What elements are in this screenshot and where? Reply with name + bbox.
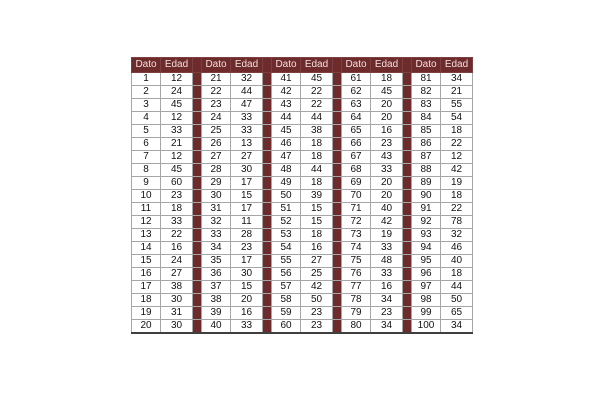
dato-cell: 22 <box>202 86 231 99</box>
table-row: 4122433444464208454 <box>132 112 473 125</box>
group-separator <box>403 320 412 334</box>
dato-cell: 8 <box>132 164 161 177</box>
edad-cell: 42 <box>441 164 473 177</box>
edad-cell: 18 <box>441 125 473 138</box>
dato-cell: 89 <box>412 177 441 190</box>
dato-cell: 83 <box>412 99 441 112</box>
dato-cell: 38 <box>202 294 231 307</box>
edad-cell: 27 <box>231 151 263 164</box>
group-separator <box>263 255 272 268</box>
edad-cell: 18 <box>301 177 333 190</box>
group-separator <box>403 125 412 138</box>
edad-cell: 47 <box>231 99 263 112</box>
group-separator <box>263 294 272 307</box>
group-separator <box>333 125 342 138</box>
dato-cell: 7 <box>132 151 161 164</box>
dato-cell: 6 <box>132 138 161 151</box>
edad-cell: 48 <box>371 255 403 268</box>
edad-cell: 34 <box>441 73 473 86</box>
edad-cell: 23 <box>301 320 333 334</box>
edad-cell: 38 <box>161 281 193 294</box>
group-separator <box>403 151 412 164</box>
group-separator <box>403 138 412 151</box>
table-row: 3452347432263208355 <box>132 99 473 112</box>
group-separator <box>403 216 412 229</box>
dato-cell: 57 <box>272 281 301 294</box>
edad-header: Edad <box>231 58 263 73</box>
dato-cell: 95 <box>412 255 441 268</box>
dato-cell: 36 <box>202 268 231 281</box>
group-separator <box>193 112 202 125</box>
edad-cell: 13 <box>231 138 263 151</box>
edad-cell: 22 <box>301 99 333 112</box>
group-separator <box>403 112 412 125</box>
dato-cell: 54 <box>272 242 301 255</box>
group-separator <box>333 177 342 190</box>
group-separator <box>193 281 202 294</box>
group-separator <box>263 138 272 151</box>
dato-cell: 73 <box>342 229 371 242</box>
dato-cell: 92 <box>412 216 441 229</box>
group-separator <box>403 242 412 255</box>
dato-cell: 15 <box>132 255 161 268</box>
edad-cell: 19 <box>441 177 473 190</box>
table-row: 14163423541674339446 <box>132 242 473 255</box>
dato-cell: 79 <box>342 307 371 320</box>
group-separator <box>193 203 202 216</box>
table-row: 203040336023803410034 <box>132 320 473 334</box>
edad-cell: 44 <box>441 281 473 294</box>
group-separator <box>263 242 272 255</box>
group-separator <box>193 86 202 99</box>
table-row: 13223328531873199332 <box>132 229 473 242</box>
group-separator <box>193 125 202 138</box>
dato-cell: 27 <box>202 151 231 164</box>
edad-cell: 22 <box>441 203 473 216</box>
dato-cell: 61 <box>342 73 371 86</box>
group-separator <box>333 73 342 86</box>
edad-cell: 33 <box>231 125 263 138</box>
dato-cell: 32 <box>202 216 231 229</box>
edad-cell: 34 <box>371 320 403 334</box>
dato-header: Dato <box>412 58 441 73</box>
dato-cell: 29 <box>202 177 231 190</box>
table-row: 5332533453865168518 <box>132 125 473 138</box>
dato-header: Dato <box>202 58 231 73</box>
edad-cell: 44 <box>301 164 333 177</box>
edad-cell: 15 <box>231 190 263 203</box>
edad-cell: 15 <box>301 216 333 229</box>
group-separator <box>403 177 412 190</box>
edad-cell: 17 <box>231 255 263 268</box>
group-separator <box>263 125 272 138</box>
group-separator <box>333 320 342 334</box>
dato-cell: 26 <box>202 138 231 151</box>
group-separator <box>333 86 342 99</box>
group-separator <box>403 307 412 320</box>
dato-cell: 37 <box>202 281 231 294</box>
edad-cell: 33 <box>371 242 403 255</box>
dato-cell: 56 <box>272 268 301 281</box>
group-separator <box>263 73 272 86</box>
dato-cell: 94 <box>412 242 441 255</box>
dato-cell: 68 <box>342 164 371 177</box>
dato-cell: 17 <box>132 281 161 294</box>
dato-cell: 12 <box>132 216 161 229</box>
dato-cell: 35 <box>202 255 231 268</box>
dato-cell: 4 <box>132 112 161 125</box>
edad-cell: 22 <box>441 138 473 151</box>
edad-cell: 40 <box>441 255 473 268</box>
edad-cell: 22 <box>301 86 333 99</box>
edad-cell: 25 <box>301 268 333 281</box>
dato-cell: 20 <box>132 320 161 334</box>
group-separator <box>263 151 272 164</box>
edad-cell: 23 <box>301 307 333 320</box>
edad-cell: 16 <box>231 307 263 320</box>
group-separator <box>403 268 412 281</box>
dato-cell: 52 <box>272 216 301 229</box>
edad-cell: 30 <box>231 164 263 177</box>
group-separator <box>193 320 202 334</box>
dato-cell: 48 <box>272 164 301 177</box>
group-separator <box>263 177 272 190</box>
edad-header: Edad <box>301 58 333 73</box>
edad-cell: 33 <box>161 216 193 229</box>
edad-cell: 19 <box>371 229 403 242</box>
dato-cell: 72 <box>342 216 371 229</box>
group-separator <box>403 255 412 268</box>
group-separator <box>263 112 272 125</box>
table-row: 9602917491869208919 <box>132 177 473 190</box>
group-separator <box>193 307 202 320</box>
edad-cell: 21 <box>441 86 473 99</box>
dato-cell: 62 <box>342 86 371 99</box>
header-separator <box>403 58 412 73</box>
dato-cell: 49 <box>272 177 301 190</box>
edad-cell: 39 <box>301 190 333 203</box>
edad-cell: 78 <box>441 216 473 229</box>
dato-cell: 82 <box>412 86 441 99</box>
table-row: 15243517552775489540 <box>132 255 473 268</box>
group-separator <box>193 229 202 242</box>
edad-cell: 16 <box>371 281 403 294</box>
edad-cell: 11 <box>231 216 263 229</box>
table-row: 16273630562576339618 <box>132 268 473 281</box>
dato-cell: 98 <box>412 294 441 307</box>
dato-cell: 77 <box>342 281 371 294</box>
edad-header: Edad <box>441 58 473 73</box>
table-row: 1122132414561188134 <box>132 73 473 86</box>
dato-cell: 42 <box>272 86 301 99</box>
table-row: 6212613461866238622 <box>132 138 473 151</box>
dato-header: Dato <box>272 58 301 73</box>
edad-cell: 40 <box>371 203 403 216</box>
group-separator <box>193 99 202 112</box>
dato-header: Dato <box>132 58 161 73</box>
header-separator <box>193 58 202 73</box>
dato-cell: 31 <box>202 203 231 216</box>
group-separator <box>193 164 202 177</box>
dato-cell: 1 <box>132 73 161 86</box>
group-separator <box>333 294 342 307</box>
dato-cell: 21 <box>202 73 231 86</box>
dato-header: Dato <box>342 58 371 73</box>
group-separator <box>403 86 412 99</box>
dato-cell: 19 <box>132 307 161 320</box>
group-separator <box>193 138 202 151</box>
dato-cell: 75 <box>342 255 371 268</box>
edad-cell: 24 <box>161 255 193 268</box>
page: DatoEdadDatoEdadDatoEdadDatoEdadDatoEdad… <box>0 0 600 420</box>
edad-cell: 65 <box>441 307 473 320</box>
edad-cell: 18 <box>371 73 403 86</box>
group-separator <box>193 268 202 281</box>
edad-cell: 20 <box>371 177 403 190</box>
edad-header: Edad <box>371 58 403 73</box>
dato-cell: 58 <box>272 294 301 307</box>
edad-cell: 34 <box>371 294 403 307</box>
edad-cell: 42 <box>301 281 333 294</box>
edad-cell: 50 <box>301 294 333 307</box>
edad-cell: 15 <box>301 203 333 216</box>
group-separator <box>333 216 342 229</box>
edad-cell: 18 <box>441 268 473 281</box>
dato-cell: 13 <box>132 229 161 242</box>
edad-cell: 30 <box>231 268 263 281</box>
dato-cell: 45 <box>272 125 301 138</box>
group-separator <box>333 190 342 203</box>
header-separator <box>333 58 342 73</box>
dato-cell: 93 <box>412 229 441 242</box>
group-separator <box>333 138 342 151</box>
dato-cell: 53 <box>272 229 301 242</box>
dato-edad-table: DatoEdadDatoEdadDatoEdadDatoEdadDatoEdad… <box>131 57 473 334</box>
dato-cell: 86 <box>412 138 441 151</box>
dato-cell: 63 <box>342 99 371 112</box>
table-row: 17383715574277169744 <box>132 281 473 294</box>
edad-header: Edad <box>161 58 193 73</box>
dato-cell: 90 <box>412 190 441 203</box>
dato-cell: 97 <box>412 281 441 294</box>
group-separator <box>333 307 342 320</box>
edad-cell: 17 <box>231 203 263 216</box>
edad-cell: 45 <box>161 164 193 177</box>
edad-cell: 15 <box>231 281 263 294</box>
dato-cell: 96 <box>412 268 441 281</box>
group-separator <box>193 177 202 190</box>
dato-cell: 34 <box>202 242 231 255</box>
table-row: 11183117511571409122 <box>132 203 473 216</box>
edad-cell: 30 <box>161 320 193 334</box>
edad-cell: 27 <box>161 268 193 281</box>
edad-cell: 50 <box>441 294 473 307</box>
edad-cell: 31 <box>161 307 193 320</box>
dato-cell: 64 <box>342 112 371 125</box>
dato-cell: 87 <box>412 151 441 164</box>
group-separator <box>333 281 342 294</box>
group-separator <box>333 112 342 125</box>
dato-cell: 74 <box>342 242 371 255</box>
edad-cell: 18 <box>301 138 333 151</box>
dato-cell: 5 <box>132 125 161 138</box>
group-separator <box>403 190 412 203</box>
group-separator <box>263 190 272 203</box>
edad-cell: 60 <box>161 177 193 190</box>
group-separator <box>403 164 412 177</box>
edad-cell: 16 <box>371 125 403 138</box>
edad-cell: 33 <box>161 125 193 138</box>
group-separator <box>263 307 272 320</box>
group-separator <box>333 164 342 177</box>
dato-cell: 91 <box>412 203 441 216</box>
edad-cell: 45 <box>371 86 403 99</box>
group-separator <box>333 242 342 255</box>
dato-cell: 78 <box>342 294 371 307</box>
dato-cell: 60 <box>272 320 301 334</box>
edad-cell: 23 <box>371 138 403 151</box>
group-separator <box>403 281 412 294</box>
dato-cell: 100 <box>412 320 441 334</box>
table-head: DatoEdadDatoEdadDatoEdadDatoEdadDatoEdad <box>132 58 473 73</box>
group-separator <box>403 73 412 86</box>
edad-cell: 44 <box>231 86 263 99</box>
group-separator <box>193 242 202 255</box>
table-row: 19313916592379239965 <box>132 307 473 320</box>
group-separator <box>193 216 202 229</box>
edad-cell: 44 <box>301 112 333 125</box>
dato-cell: 41 <box>272 73 301 86</box>
group-separator <box>193 294 202 307</box>
edad-cell: 54 <box>441 112 473 125</box>
edad-cell: 24 <box>161 86 193 99</box>
edad-cell: 45 <box>161 99 193 112</box>
dato-cell: 25 <box>202 125 231 138</box>
dato-cell: 67 <box>342 151 371 164</box>
edad-cell: 45 <box>301 73 333 86</box>
edad-cell: 12 <box>161 73 193 86</box>
edad-cell: 18 <box>301 151 333 164</box>
header-separator <box>263 58 272 73</box>
edad-cell: 27 <box>301 255 333 268</box>
dato-cell: 43 <box>272 99 301 112</box>
group-separator <box>333 99 342 112</box>
edad-cell: 17 <box>231 177 263 190</box>
edad-cell: 33 <box>231 112 263 125</box>
dato-cell: 11 <box>132 203 161 216</box>
edad-cell: 28 <box>231 229 263 242</box>
group-separator <box>333 203 342 216</box>
edad-cell: 43 <box>371 151 403 164</box>
edad-cell: 46 <box>441 242 473 255</box>
group-separator <box>263 203 272 216</box>
dato-cell: 3 <box>132 99 161 112</box>
edad-cell: 16 <box>161 242 193 255</box>
dato-cell: 65 <box>342 125 371 138</box>
dato-cell: 39 <box>202 307 231 320</box>
dato-cell: 44 <box>272 112 301 125</box>
dato-cell: 76 <box>342 268 371 281</box>
group-separator <box>403 294 412 307</box>
edad-cell: 38 <box>301 125 333 138</box>
edad-cell: 12 <box>441 151 473 164</box>
edad-cell: 55 <box>441 99 473 112</box>
dato-cell: 51 <box>272 203 301 216</box>
group-separator <box>403 203 412 216</box>
edad-cell: 21 <box>161 138 193 151</box>
dato-cell: 23 <box>202 99 231 112</box>
dato-cell: 24 <box>202 112 231 125</box>
dato-cell: 14 <box>132 242 161 255</box>
group-separator <box>263 281 272 294</box>
dato-cell: 80 <box>342 320 371 334</box>
group-separator <box>263 320 272 334</box>
table-row: 18303820585078349850 <box>132 294 473 307</box>
table-row: 10233015503970209018 <box>132 190 473 203</box>
dato-cell: 30 <box>202 190 231 203</box>
edad-cell: 18 <box>301 229 333 242</box>
dato-cell: 18 <box>132 294 161 307</box>
edad-cell: 32 <box>231 73 263 86</box>
edad-cell: 23 <box>231 242 263 255</box>
group-separator <box>193 255 202 268</box>
group-separator <box>263 164 272 177</box>
dato-cell: 85 <box>412 125 441 138</box>
group-separator <box>333 151 342 164</box>
edad-cell: 12 <box>161 112 193 125</box>
group-separator <box>193 73 202 86</box>
table-row: 12333211521572429278 <box>132 216 473 229</box>
header-row: DatoEdadDatoEdadDatoEdadDatoEdadDatoEdad <box>132 58 473 73</box>
edad-cell: 20 <box>371 190 403 203</box>
edad-cell: 32 <box>441 229 473 242</box>
dato-cell: 40 <box>202 320 231 334</box>
dato-cell: 70 <box>342 190 371 203</box>
group-separator <box>333 229 342 242</box>
dato-cell: 10 <box>132 190 161 203</box>
group-separator <box>403 229 412 242</box>
edad-cell: 23 <box>161 190 193 203</box>
edad-cell: 20 <box>371 112 403 125</box>
dato-cell: 99 <box>412 307 441 320</box>
group-separator <box>333 255 342 268</box>
edad-cell: 20 <box>231 294 263 307</box>
edad-cell: 42 <box>371 216 403 229</box>
group-separator <box>403 99 412 112</box>
dato-cell: 33 <box>202 229 231 242</box>
edad-cell: 16 <box>301 242 333 255</box>
edad-cell: 18 <box>161 203 193 216</box>
edad-cell: 33 <box>231 320 263 334</box>
table-row: 7122727471867438712 <box>132 151 473 164</box>
group-separator <box>263 229 272 242</box>
dato-cell: 55 <box>272 255 301 268</box>
edad-cell: 18 <box>441 190 473 203</box>
group-separator <box>263 268 272 281</box>
dato-cell: 2 <box>132 86 161 99</box>
dato-cell: 81 <box>412 73 441 86</box>
group-separator <box>193 190 202 203</box>
dato-cell: 28 <box>202 164 231 177</box>
dato-cell: 16 <box>132 268 161 281</box>
table-row: 8452830484468338842 <box>132 164 473 177</box>
dato-cell: 59 <box>272 307 301 320</box>
group-separator <box>263 99 272 112</box>
edad-cell: 30 <box>161 294 193 307</box>
dato-cell: 84 <box>412 112 441 125</box>
table-row: 2242244422262458221 <box>132 86 473 99</box>
table-body: 1122132414561188134224224442226245822134… <box>132 73 473 334</box>
